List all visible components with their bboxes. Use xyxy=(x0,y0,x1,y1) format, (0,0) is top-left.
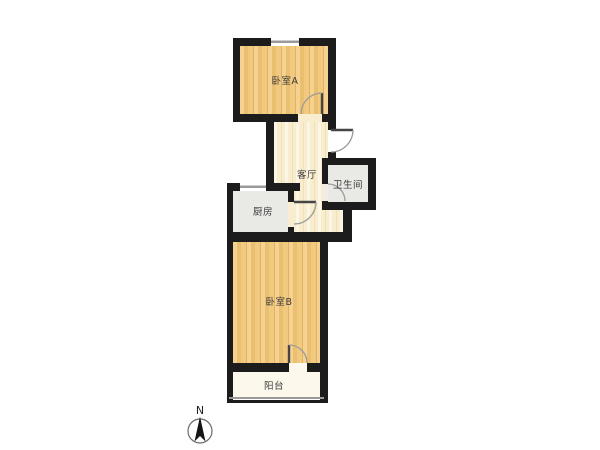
compass-north-label: N xyxy=(196,404,204,417)
plan-overlay: N xyxy=(0,0,600,450)
room-label-bedroom-b: 卧室B xyxy=(265,294,292,308)
room-label-balcony: 阳台 xyxy=(264,378,284,392)
room-label-kitchen: 厨房 xyxy=(253,204,273,218)
room-label-bathroom: 卫生间 xyxy=(333,177,363,191)
room-label-living: 客厅 xyxy=(297,167,317,181)
floor-plan: N 卧室A 客厅 卫生间 厨房 卧室B 阳台 xyxy=(0,0,600,450)
door-arc-bedroom-a xyxy=(301,93,322,114)
door-arc-bedroom-b xyxy=(289,345,307,363)
room-label-bedroom-a: 卧室A xyxy=(272,73,299,87)
door-arc-kitchen xyxy=(294,202,316,224)
door-arc-entrance xyxy=(331,130,353,152)
